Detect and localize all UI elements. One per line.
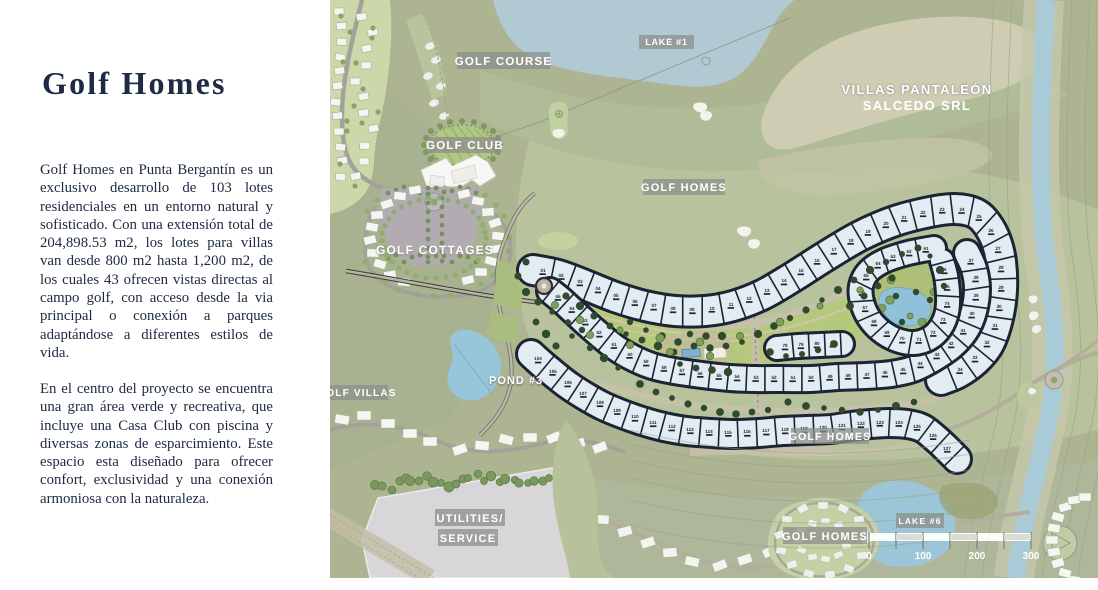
svg-text:65: 65 (555, 294, 561, 299)
svg-text:105: 105 (549, 369, 557, 374)
svg-text:37: 37 (968, 258, 974, 263)
svg-text:POND #3: POND #3 (489, 375, 543, 387)
svg-text:GOLF HOMES: GOLF HOMES (782, 531, 868, 543)
svg-text:42: 42 (948, 341, 954, 346)
svg-text:21: 21 (901, 215, 907, 220)
svg-text:59: 59 (643, 359, 649, 364)
svg-text:57: 57 (679, 368, 685, 373)
svg-text:60: 60 (627, 352, 633, 357)
svg-text:GOLF VILLAS: GOLF VILLAS (330, 388, 397, 399)
svg-text:23: 23 (939, 207, 945, 212)
svg-text:09: 09 (689, 307, 695, 312)
svg-text:27: 27 (995, 246, 1001, 251)
svg-text:26: 26 (988, 228, 994, 233)
svg-text:67: 67 (862, 305, 868, 310)
svg-text:54: 54 (734, 374, 740, 379)
svg-text:72: 72 (930, 330, 936, 335)
svg-text:74: 74 (944, 301, 950, 306)
svg-text:64: 64 (875, 261, 881, 266)
svg-text:125: 125 (913, 424, 921, 429)
svg-text:122: 122 (857, 421, 865, 426)
svg-text:61: 61 (611, 342, 617, 347)
svg-text:LAKE #6: LAKE #6 (898, 516, 941, 526)
svg-text:111: 111 (649, 420, 657, 425)
svg-text:17: 17 (831, 247, 837, 252)
svg-text:40: 40 (969, 311, 975, 316)
svg-text:44: 44 (917, 361, 923, 366)
svg-text:14: 14 (781, 278, 787, 283)
svg-text:11: 11 (729, 302, 734, 307)
svg-text:47: 47 (864, 372, 870, 377)
svg-text:18: 18 (848, 238, 854, 243)
svg-text:06: 06 (632, 299, 638, 304)
svg-text:104: 104 (534, 356, 542, 361)
svg-text:49: 49 (827, 374, 833, 379)
svg-text:63: 63 (890, 254, 896, 259)
svg-text:32: 32 (984, 340, 990, 345)
svg-text:GOLF HOMES: GOLF HOMES (789, 431, 872, 443)
svg-text:15: 15 (798, 268, 804, 273)
svg-text:29: 29 (998, 285, 1004, 290)
svg-text:71: 71 (916, 337, 922, 342)
svg-text:46: 46 (882, 370, 888, 375)
svg-text:GOLF CLUB: GOLF CLUB (426, 140, 504, 152)
svg-text:13: 13 (764, 288, 770, 293)
svg-text:33: 33 (972, 355, 978, 360)
svg-text:05: 05 (613, 293, 619, 298)
svg-text:115: 115 (724, 430, 732, 435)
svg-text:30: 30 (996, 304, 1002, 309)
svg-text:55: 55 (716, 373, 722, 378)
svg-text:78: 78 (782, 343, 788, 348)
svg-text:50: 50 (808, 375, 814, 380)
svg-text:24: 24 (959, 207, 965, 212)
svg-text:48: 48 (845, 373, 851, 378)
svg-text:41: 41 (960, 328, 966, 333)
svg-text:121: 121 (838, 423, 846, 428)
svg-text:62: 62 (596, 330, 602, 335)
svg-text:64: 64 (569, 306, 575, 311)
svg-text:79: 79 (798, 342, 804, 347)
svg-text:19: 19 (865, 229, 871, 234)
svg-text:01: 01 (540, 268, 546, 273)
svg-text:03: 03 (577, 279, 583, 284)
svg-text:25: 25 (976, 214, 982, 219)
svg-text:73: 73 (940, 317, 946, 322)
svg-text:56: 56 (697, 371, 703, 376)
svg-text:07: 07 (651, 303, 657, 308)
svg-text:200: 200 (969, 551, 986, 562)
svg-text:39: 39 (973, 293, 979, 298)
svg-text:65: 65 (863, 273, 869, 278)
svg-text:20: 20 (883, 221, 889, 226)
svg-text:45: 45 (900, 367, 906, 372)
svg-text:38: 38 (973, 275, 979, 280)
svg-text:SERVICE: SERVICE (440, 533, 497, 545)
svg-text:117: 117 (762, 428, 770, 433)
svg-text:58: 58 (661, 365, 667, 370)
svg-text:16: 16 (814, 258, 820, 263)
svg-text:124: 124 (895, 420, 903, 425)
svg-text:114: 114 (705, 429, 713, 434)
svg-text:68: 68 (871, 319, 877, 324)
svg-text:10: 10 (709, 306, 715, 311)
svg-text:53: 53 (753, 375, 759, 380)
svg-text:70: 70 (899, 336, 905, 341)
svg-text:43: 43 (934, 352, 940, 357)
svg-text:116: 116 (743, 429, 751, 434)
svg-text:112: 112 (668, 424, 676, 429)
svg-text:123: 123 (876, 420, 884, 425)
svg-text:108: 108 (596, 400, 604, 405)
svg-text:VILLAS PANTALEÓN: VILLAS PANTALEÓN (841, 82, 992, 97)
svg-text:69: 69 (884, 330, 890, 335)
svg-text:12: 12 (746, 296, 752, 301)
svg-text:LAKE #1: LAKE #1 (645, 37, 688, 47)
svg-text:UTILITIES/: UTILITIES/ (437, 513, 504, 525)
svg-text:SALCEDO SRL: SALCEDO SRL (863, 98, 972, 113)
svg-text:100: 100 (915, 551, 932, 562)
svg-text:28: 28 (998, 265, 1004, 270)
svg-text:52: 52 (771, 375, 777, 380)
svg-text:0: 0 (866, 551, 872, 562)
svg-text:109: 109 (613, 408, 621, 413)
svg-text:GOLF COTTAGES: GOLF COTTAGES (376, 243, 494, 257)
svg-text:02: 02 (558, 273, 564, 278)
svg-text:08: 08 (670, 306, 676, 311)
svg-text:04: 04 (595, 286, 601, 291)
svg-text:80: 80 (814, 341, 820, 346)
svg-text:107: 107 (579, 391, 587, 396)
svg-text:62: 62 (906, 249, 912, 254)
svg-text:113: 113 (686, 427, 694, 432)
svg-text:106: 106 (564, 380, 572, 385)
svg-text:GOLF COURSE: GOLF COURSE (455, 56, 553, 68)
svg-text:126: 126 (929, 433, 937, 438)
svg-text:51: 51 (790, 375, 796, 380)
svg-text:300: 300 (1023, 551, 1040, 562)
svg-text:22: 22 (920, 210, 926, 215)
svg-text:61: 61 (923, 246, 929, 251)
svg-text:GOLF HOMES: GOLF HOMES (641, 182, 727, 194)
svg-text:127: 127 (943, 446, 951, 451)
svg-text:34: 34 (957, 367, 963, 372)
svg-text:110: 110 (631, 414, 639, 419)
svg-text:31: 31 (992, 323, 998, 328)
